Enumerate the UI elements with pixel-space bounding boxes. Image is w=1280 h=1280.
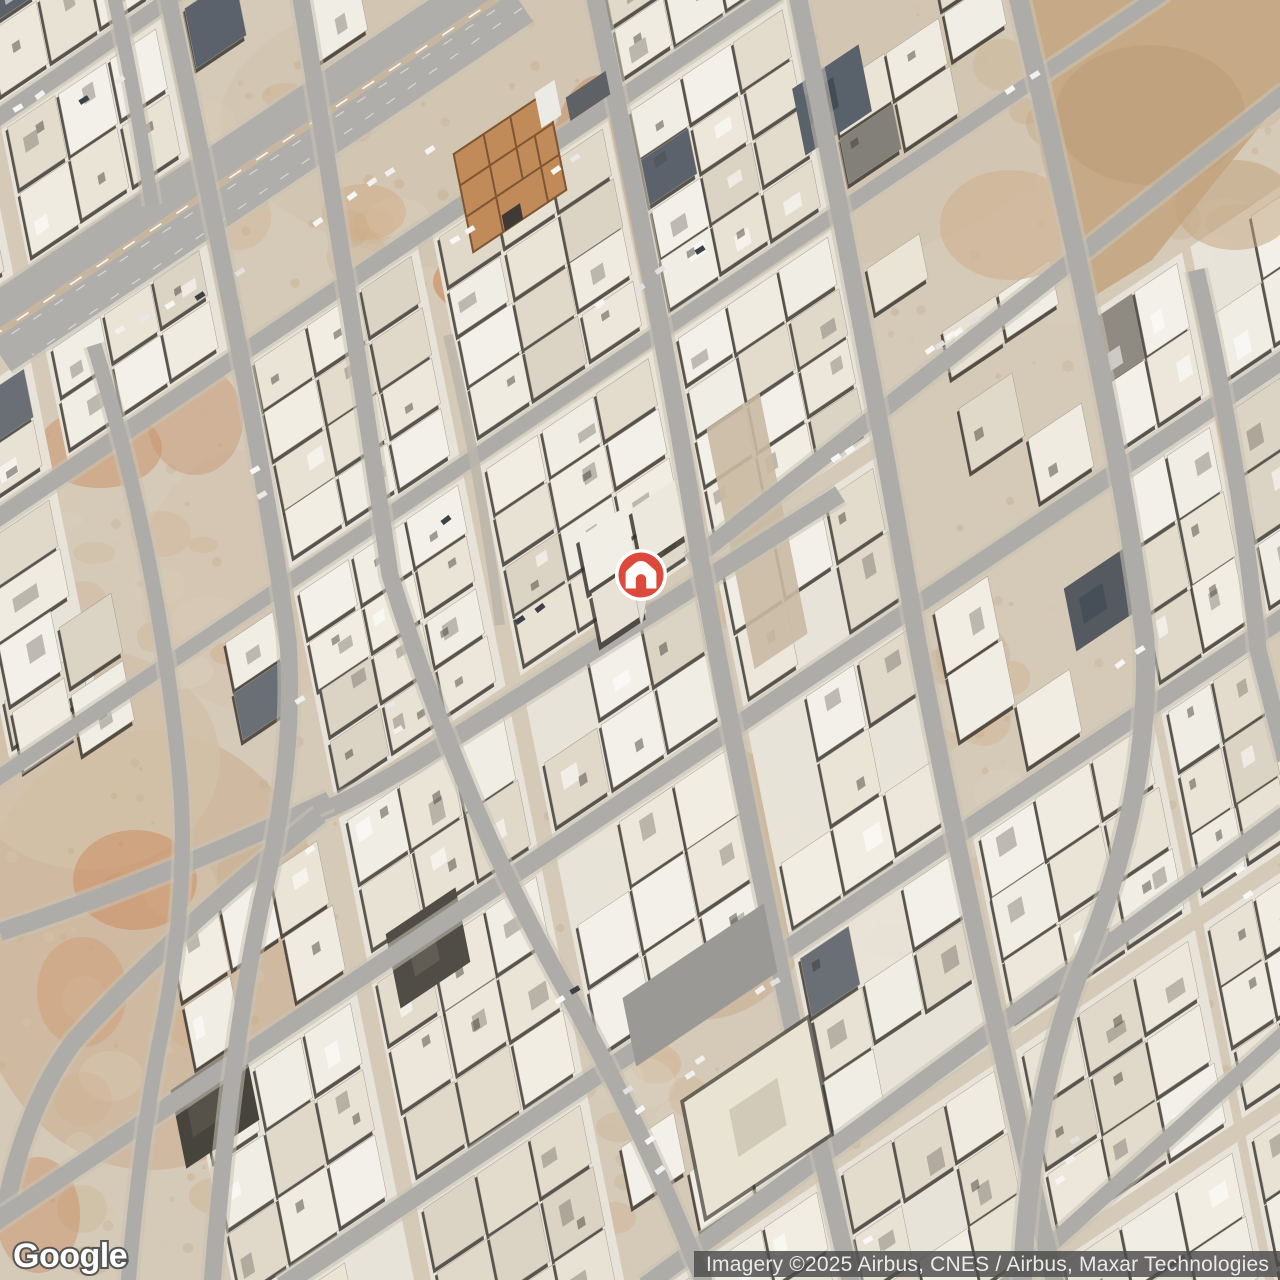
svg-text:Imagery ©2025 Airbus, CNES / A: Imagery ©2025 Airbus, CNES / Airbus, Max… <box>706 1253 1269 1276</box>
svg-text:Google: Google <box>13 1237 127 1275</box>
